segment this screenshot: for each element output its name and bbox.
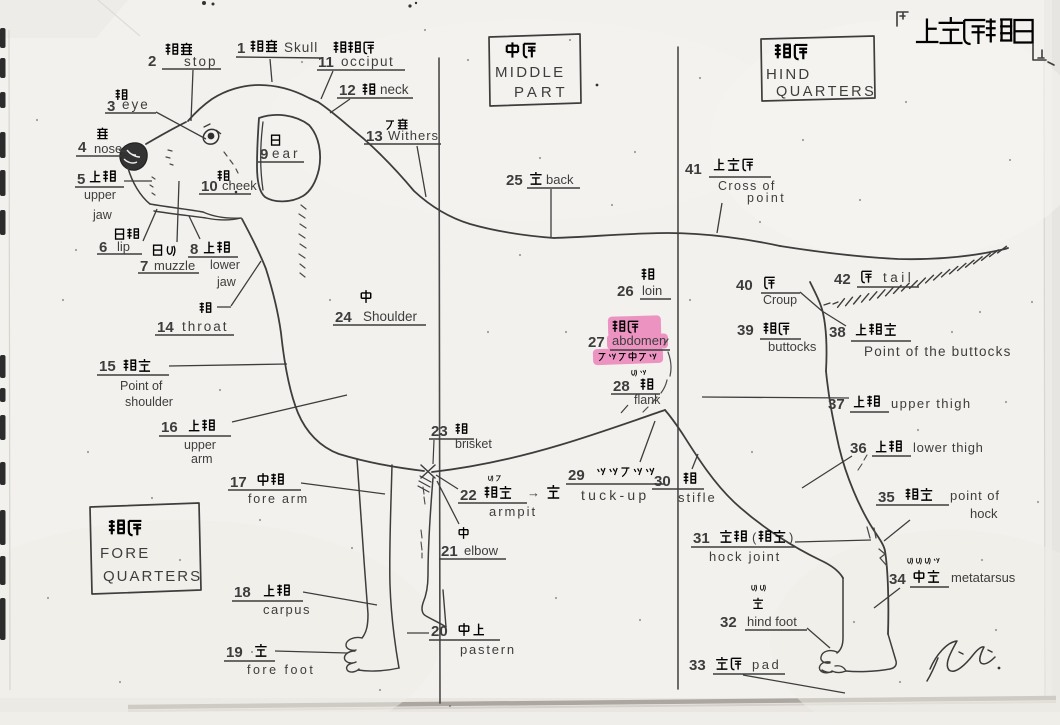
- svg-text:14: 14: [157, 319, 174, 336]
- svg-text:): ): [789, 530, 793, 545]
- svg-text:36: 36: [850, 440, 867, 457]
- svg-text:40: 40: [736, 277, 753, 294]
- svg-text:22: 22: [460, 487, 477, 504]
- svg-text:Croup: Croup: [763, 293, 797, 307]
- svg-text:HIND: HIND: [766, 66, 811, 83]
- svg-text:16: 16: [161, 419, 178, 436]
- svg-text:occiput: occiput: [341, 54, 394, 69]
- svg-text:24: 24: [335, 309, 352, 326]
- svg-text:point of: point of: [950, 488, 1000, 503]
- svg-text:13: 13: [366, 128, 383, 145]
- svg-text:9: 9: [260, 146, 268, 163]
- svg-text:MIDDLE: MIDDLE: [495, 64, 565, 81]
- svg-text:metatarsus: metatarsus: [951, 570, 1016, 585]
- svg-text:elbow: elbow: [464, 543, 499, 558]
- svg-text:Point of: Point of: [120, 379, 163, 393]
- svg-text:42: 42: [834, 271, 851, 288]
- svg-text:upper: upper: [84, 188, 116, 202]
- svg-text:neck: neck: [380, 82, 409, 97]
- svg-text:18: 18: [234, 584, 251, 601]
- svg-text:12: 12: [339, 82, 356, 99]
- svg-text:41: 41: [685, 161, 702, 178]
- svg-text:FORE: FORE: [100, 545, 150, 562]
- svg-text:15: 15: [99, 358, 116, 375]
- svg-text:cheek: cheek: [222, 178, 257, 193]
- svg-text:Point of the buttocks: Point of the buttocks: [864, 344, 1012, 359]
- svg-text:throat: throat: [182, 319, 229, 334]
- svg-text:QUARTERS: QUARTERS: [103, 568, 202, 585]
- svg-text:pastern: pastern: [460, 642, 516, 657]
- svg-text:ear: ear: [272, 146, 301, 161]
- svg-text:2: 2: [148, 53, 156, 70]
- svg-text:carpus: carpus: [263, 602, 311, 617]
- svg-text:26: 26: [617, 283, 634, 300]
- svg-text:fore arm: fore arm: [248, 492, 309, 506]
- svg-text:fore foot: fore foot: [247, 663, 315, 677]
- svg-text:23: 23: [431, 423, 448, 440]
- svg-text:hock: hock: [970, 506, 998, 521]
- svg-text:upper: upper: [184, 438, 216, 452]
- svg-text:nose: nose: [94, 141, 122, 156]
- svg-text:hock joint: hock joint: [709, 549, 781, 564]
- svg-text:abdomen: abdomen: [612, 333, 666, 348]
- svg-text:tail: tail: [883, 270, 914, 285]
- svg-text:19: 19: [226, 644, 243, 661]
- svg-text:hind foot: hind foot: [747, 614, 797, 629]
- svg-text:point: point: [747, 191, 786, 205]
- svg-text:armpit: armpit: [489, 504, 537, 519]
- svg-text:17: 17: [230, 474, 247, 491]
- svg-text:(: (: [752, 530, 757, 545]
- svg-text:33: 33: [689, 657, 706, 674]
- svg-text:eye: eye: [122, 97, 150, 112]
- svg-text:muzzle: muzzle: [154, 258, 195, 273]
- svg-text:4: 4: [78, 139, 87, 156]
- svg-text:20: 20: [431, 623, 448, 640]
- svg-text:5: 5: [77, 171, 85, 188]
- svg-text:Skull: Skull: [284, 40, 318, 55]
- svg-text:35: 35: [878, 489, 895, 506]
- svg-text:flank: flank: [634, 393, 661, 407]
- svg-text:brisket: brisket: [455, 437, 492, 451]
- svg-text:tuck-up: tuck-up: [581, 487, 649, 503]
- svg-text:→: →: [527, 485, 540, 500]
- svg-text:11: 11: [318, 54, 334, 71]
- svg-text:34: 34: [889, 571, 906, 588]
- svg-text:28: 28: [613, 378, 630, 395]
- svg-text:1: 1: [237, 40, 245, 57]
- svg-text:25: 25: [506, 172, 523, 189]
- svg-text:arm: arm: [191, 452, 213, 466]
- svg-text:jaw: jaw: [216, 275, 237, 289]
- svg-text:lower thigh: lower thigh: [913, 440, 984, 455]
- svg-text:stop: stop: [184, 54, 218, 69]
- svg-text:8: 8: [190, 241, 198, 258]
- svg-text:pad: pad: [752, 657, 781, 672]
- svg-text:27: 27: [588, 334, 605, 351]
- svg-text:buttocks: buttocks: [768, 339, 817, 354]
- svg-text:30: 30: [654, 473, 671, 490]
- svg-text:Shoulder: Shoulder: [363, 309, 418, 324]
- svg-text:39: 39: [737, 322, 754, 339]
- svg-text:lip: lip: [117, 239, 130, 254]
- svg-text:32: 32: [720, 614, 737, 631]
- svg-text:29: 29: [568, 467, 585, 484]
- svg-text:PART: PART: [514, 84, 569, 101]
- svg-text:stifle: stifle: [678, 490, 717, 505]
- svg-text:upper thigh: upper thigh: [891, 396, 971, 411]
- svg-text:lower: lower: [210, 258, 240, 272]
- svg-text:jaw: jaw: [92, 208, 113, 222]
- svg-text:back: back: [546, 172, 574, 187]
- svg-text:21: 21: [441, 543, 458, 560]
- svg-text:38: 38: [829, 324, 846, 341]
- svg-text:Withers: Withers: [388, 128, 439, 143]
- svg-text:loin: loin: [642, 283, 662, 298]
- svg-text:shoulder: shoulder: [125, 395, 173, 409]
- svg-text:10: 10: [201, 178, 218, 195]
- svg-text:31: 31: [693, 530, 710, 547]
- svg-text:QUARTERS: QUARTERS: [776, 84, 876, 100]
